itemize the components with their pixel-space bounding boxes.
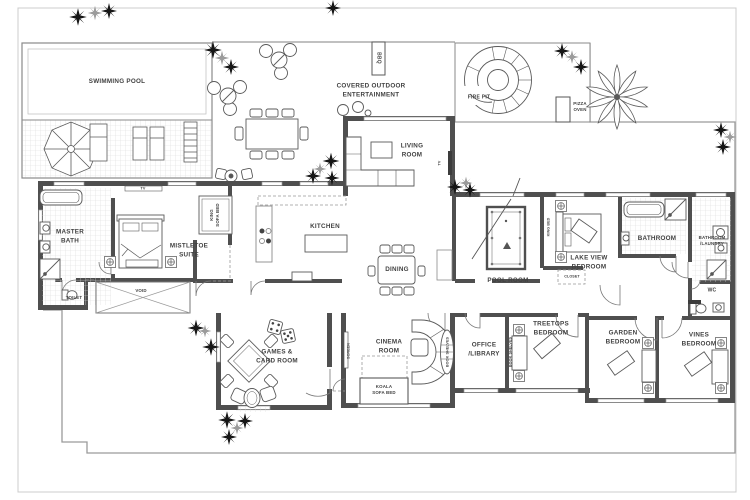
dice bbox=[280, 328, 295, 343]
toilet bbox=[690, 303, 696, 314]
tv bbox=[688, 300, 701, 304]
armchair bbox=[411, 339, 428, 356]
pool-ladder bbox=[184, 122, 197, 162]
outdoor-dining-set bbox=[235, 109, 308, 159]
living-room-furniture bbox=[346, 137, 452, 186]
tv-cabinet bbox=[125, 186, 162, 191]
floorplan-drawing bbox=[0, 0, 750, 500]
headboard bbox=[556, 212, 563, 254]
pizza-oven bbox=[556, 97, 570, 122]
bbq-bench bbox=[372, 42, 385, 75]
screen bbox=[344, 332, 348, 368]
office-furniture bbox=[441, 330, 454, 374]
tv bbox=[448, 151, 452, 175]
bed bbox=[712, 350, 728, 384]
floor-plan: SWIMMING POOL COVERED OUTDOOR ENTERTAINM… bbox=[0, 0, 750, 500]
koala-sofa-bed bbox=[360, 378, 408, 404]
treetops-furniture bbox=[512, 333, 560, 370]
swimming-pool-area bbox=[22, 43, 212, 178]
coffee-table bbox=[371, 142, 392, 158]
games-room-furniture bbox=[220, 319, 296, 407]
lakeview-furniture bbox=[556, 212, 601, 254]
palm-plant bbox=[586, 65, 649, 129]
mistletoe-suite-furniture bbox=[117, 186, 232, 268]
bed bbox=[642, 350, 656, 382]
bed bbox=[512, 336, 527, 370]
kitchen-fixtures bbox=[256, 206, 347, 281]
garden-furniture bbox=[607, 350, 656, 382]
dining-set bbox=[368, 245, 425, 295]
kitchen-island bbox=[305, 235, 347, 252]
cinema-furniture bbox=[344, 320, 453, 404]
